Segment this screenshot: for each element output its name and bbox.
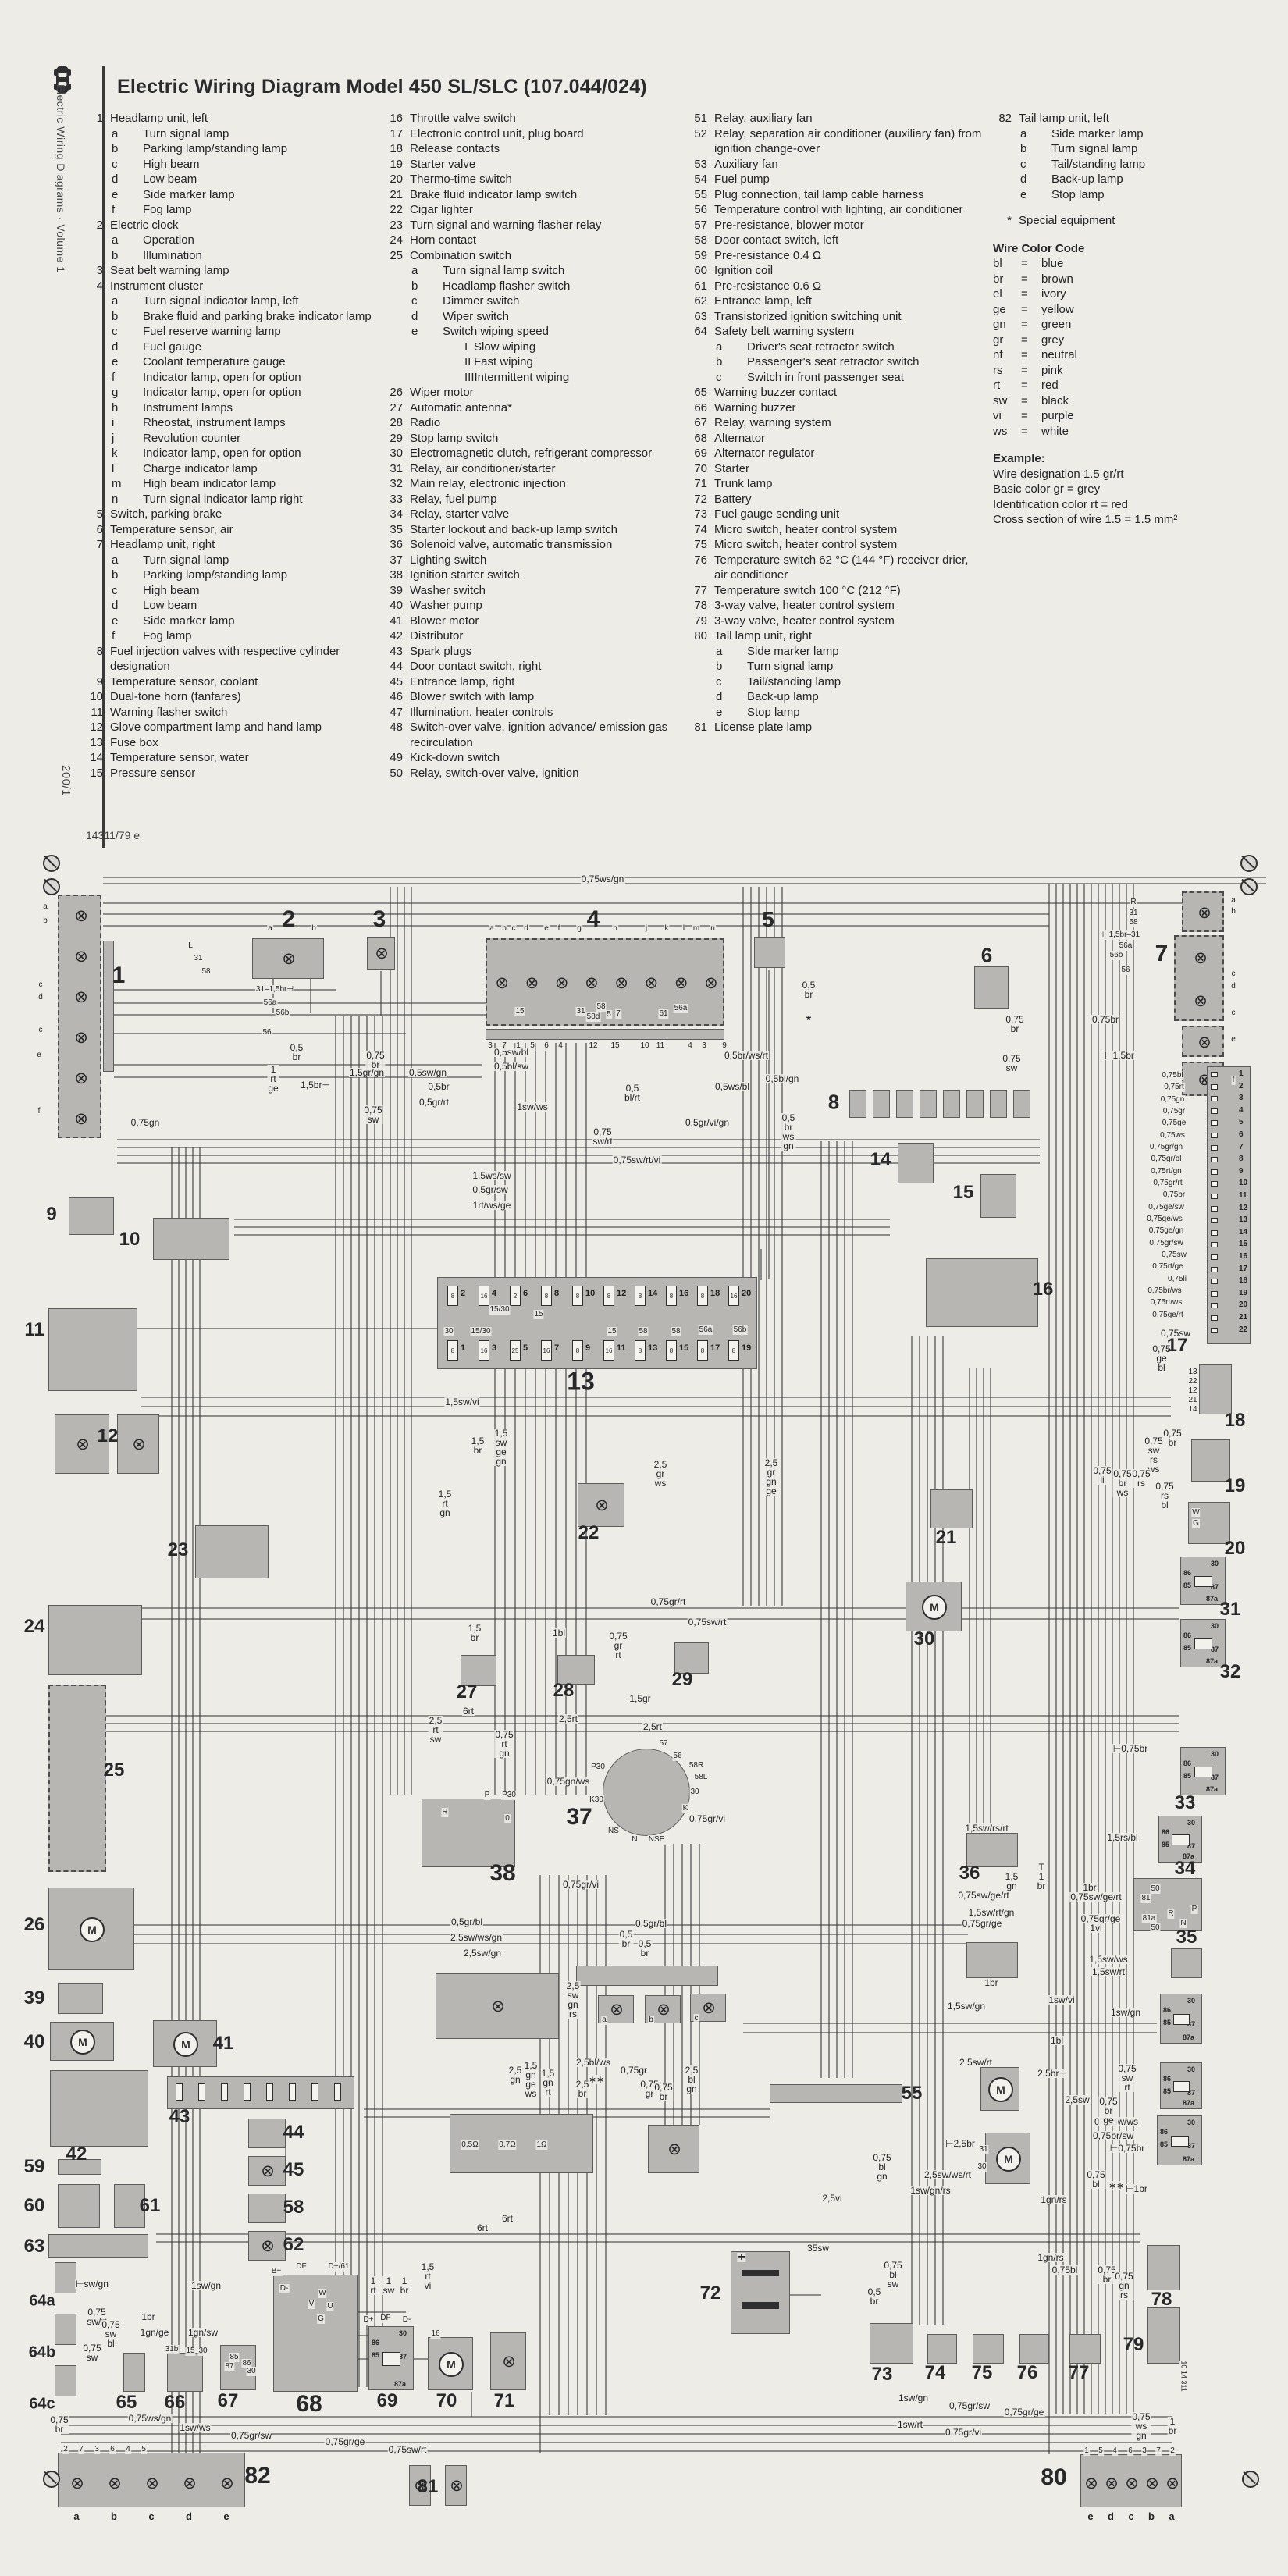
legend-text: Main relay, electronic injection (410, 476, 678, 492)
wire-label: 2,5rt (642, 1722, 663, 1731)
wire-label: n (710, 924, 716, 934)
fuse-number: 11 (617, 1343, 626, 1353)
legend-text: Switch wiping speed (443, 324, 678, 340)
wire-label: ∗∗ (588, 2075, 605, 2084)
component-25 (48, 1685, 106, 1872)
wire-label: 1bl (1050, 2036, 1064, 2045)
legend-row: 54Fuel pump (688, 172, 984, 187)
legend-row: 62Entrance lamp, left (688, 294, 984, 309)
component-11 (48, 1308, 137, 1391)
legend-row: 58Door contact switch, left (688, 233, 984, 248)
relay-terminal: 30 (399, 2329, 407, 2337)
legend-row: 80Tail lamp unit, right (688, 628, 984, 644)
wire-label: 0,75sw (82, 2343, 101, 2362)
wire-label: 0 (504, 1814, 511, 1823)
legend-key: e (110, 187, 143, 203)
fuse-number: 16 (679, 1289, 688, 1298)
component-14 (898, 1143, 934, 1183)
bulb-icon: ⊗ (145, 2476, 159, 2492)
wire-label: 0,75br (49, 2415, 69, 2434)
legend-text: Back-up lamp (747, 689, 984, 705)
legend-text: Charge indicator lamp (143, 461, 373, 477)
legend-text: Warning flasher switch (110, 705, 373, 720)
component-64a (55, 2262, 76, 2293)
legend-number: 17 (384, 126, 403, 142)
legend-number: 43 (384, 644, 403, 660)
fuse-number: 4 (492, 1289, 496, 1298)
legend-key: c (110, 157, 143, 173)
wire-label: 1,5rtvi (421, 2262, 436, 2290)
lamp-letter: d (1108, 2510, 1114, 2522)
legend-text: Turn signal lamp (143, 126, 373, 142)
wire-label: 1rt (369, 2276, 376, 2295)
legend-text: Dual-tone horn (fanfares) (110, 689, 373, 705)
legend-key: e (410, 324, 443, 340)
ecu-terminal (1211, 1279, 1218, 1284)
wire-label: 30 (246, 2367, 256, 2376)
wire-label: 15 (607, 1327, 617, 1336)
wire-label: 58 (671, 1327, 681, 1336)
wire-label: 58 (201, 967, 211, 977)
bulb-icon: ⊗ (1165, 2476, 1179, 2492)
ecu-terminal-number: 10 (1239, 1179, 1247, 1187)
wire-label: 56b (733, 1325, 748, 1335)
ecu-terminal-number: 22 (1239, 1325, 1247, 1334)
legend-text: Revolution counter (143, 431, 373, 447)
legend-key: c (410, 294, 443, 309)
legend-row: 32Main relay, electronic injection (384, 476, 678, 492)
motor-icon: M (922, 1595, 947, 1620)
wire-label: 0,75sw (1161, 1251, 1187, 1260)
lamp-letter: b (1148, 2510, 1155, 2522)
wire-label: L (187, 941, 194, 951)
component-26: M (48, 1888, 134, 1970)
component-number-64b: 64b (29, 2344, 55, 2362)
fuse: 8 (603, 1286, 614, 1306)
component-number-19: 19 (1225, 1475, 1246, 1497)
legend-text: Relay, warning system (714, 415, 984, 431)
wire-label: 2,5gn (508, 2065, 523, 2084)
legend-row: 70Starter (688, 461, 984, 477)
legend-row: dLow beam (84, 598, 373, 614)
wire-label: 31 (1128, 909, 1138, 918)
legend-row: kIndicator lamp, open for option (84, 446, 373, 461)
component-number-64c: 64c (29, 2396, 55, 2414)
legend-row: eSide marker lamp (84, 187, 373, 203)
wire-label: d (1230, 982, 1236, 991)
legend-number: 13 (84, 735, 103, 751)
wire-color-code-row: br=brown (993, 272, 1266, 287)
legend-row: 13Fuse box (84, 735, 373, 751)
ecu-terminal (1211, 1230, 1218, 1236)
legend-row: 69Alternator regulator (688, 446, 984, 461)
wire-label: 0,5ws/bl (714, 1082, 750, 1091)
component-number-30: 30 (914, 1628, 935, 1650)
component-76 (1019, 2334, 1049, 2364)
legend-text: Glove compartment lamp and hand lamp (110, 720, 373, 735)
legend-text: Washer pump (410, 598, 678, 614)
legend-number: 61 (688, 279, 707, 294)
wire-label: 0,75gr/vi (945, 2428, 982, 2437)
wire-label: NS (607, 1827, 620, 1836)
wire-label: 1br (984, 1978, 998, 1987)
legend-text: Micro switch, heater control system (714, 522, 984, 538)
component-number-63: 63 (24, 2236, 45, 2258)
relay-terminal: 87 (1211, 1583, 1219, 1591)
wire-label: 7 (78, 2445, 84, 2454)
legend-number: 1 (84, 111, 103, 126)
legend-row: iRheostat, instrument lamps (84, 415, 373, 431)
legend-key: b (110, 568, 143, 583)
legend-key: a (110, 553, 143, 568)
legend-text: Headlamp flasher switch (443, 279, 678, 294)
bulb-icon: ⊗ (1194, 994, 1208, 1009)
wire-label: 0,7Ω (498, 2140, 516, 2150)
bulb-icon: ⊗ (1084, 2476, 1098, 2492)
relay-terminal: 86 (1162, 1828, 1169, 1836)
legend-number: 70 (688, 461, 707, 477)
legend-text: Warning buzzer contact (714, 385, 984, 400)
legend-text: Transistorized ignition switching unit (714, 309, 984, 325)
wire-color-name: purple (1041, 408, 1074, 424)
legend-text: Temperature control with lighting, air c… (714, 202, 984, 218)
component-53: M (980, 2067, 1019, 2111)
legend-text: Back-up lamp (1051, 172, 1266, 187)
component-number-20: 20 (1225, 1538, 1246, 1560)
wire-label: 2 (1169, 2446, 1176, 2456)
wire-label: 2,5sw/gn (463, 1948, 502, 1958)
wire-label: 3 (94, 2445, 100, 2454)
wire-label: 0,75sw (363, 1105, 382, 1124)
fuse-number: 17 (710, 1343, 720, 1353)
ecu-terminal (1211, 1315, 1218, 1321)
component-9 (69, 1197, 114, 1235)
component-number-2: 2 (283, 906, 296, 933)
legend-number: 29 (384, 431, 403, 447)
wire-label: 0,75gn (1160, 1095, 1186, 1105)
legend-row: lCharge indicator lamp (84, 461, 373, 477)
legend-number: 79 (688, 614, 707, 629)
legend-text: Fuel gauge sending unit (714, 507, 984, 522)
bulb-icon: ⊗ (74, 990, 88, 1005)
fuse-number: 1 (461, 1343, 465, 1353)
legend-row: dWiper switch (384, 309, 678, 325)
wire-label: 31 (193, 954, 203, 963)
component-54: M (985, 2133, 1030, 2184)
wire-color-equals: = (1021, 424, 1041, 439)
relay-terminal: 85 (1160, 2140, 1168, 2148)
wire-label: 0,75blsw (883, 2261, 902, 2289)
component-number-40: 40 (24, 2031, 45, 2053)
wire-label: 0,75grrt (608, 1631, 628, 1660)
legend-number: 12 (84, 720, 103, 735)
wire-label: d (523, 924, 529, 934)
legend-key: e (110, 614, 143, 629)
legend-number: 19 (384, 157, 403, 173)
legend-text: Blower switch with lamp (410, 689, 678, 705)
legend-text: Side marker lamp (747, 644, 984, 660)
legend-row: 57Pre-resistance, blower motor (688, 218, 984, 233)
component-number-69: 69 (377, 2390, 398, 2412)
component-22: ⊗ (578, 1483, 624, 1527)
component-number-28: 28 (553, 1680, 575, 1702)
component-17: 12345678910111213141516171819202122 (1207, 1066, 1251, 1344)
relay-terminal: 86 (1163, 2075, 1171, 2083)
legend-text: Side marker lamp (1051, 126, 1266, 142)
legend-row: 51Relay, auxiliary fan (688, 111, 984, 126)
fuse: 16 (479, 1286, 489, 1306)
wire-label: ⊢1br (1125, 2184, 1148, 2194)
legend-text: Tail/standing lamp (747, 674, 984, 690)
wire-label: 0,5br (802, 980, 817, 999)
ecu-terminal-number: 15 (1239, 1240, 1247, 1248)
legend-row: dLow beam (84, 172, 373, 187)
legend-row: 35Starter lockout and back-up lamp switc… (384, 522, 678, 538)
legend-row: 52Relay, separation air conditioner (aux… (688, 126, 984, 157)
legend-text: Solenoid valve, automatic transmission (410, 537, 678, 553)
legend-number: 55 (688, 187, 707, 203)
wire-label: 6 (1127, 2446, 1133, 2456)
component-45: ⊗ (248, 2156, 286, 2186)
wire-label: 0,75br (1162, 1429, 1182, 1447)
wire-color-code-title: Wire Color Code (993, 241, 1266, 257)
legend-row: fIndicator lamp, open for option (84, 370, 373, 386)
relay-terminal: 30 (1187, 1997, 1195, 2005)
legend-row: 45Entrance lamp, right (384, 674, 678, 690)
legend-row: 16Throttle valve switch (384, 111, 678, 126)
legend-row: 46Blower switch with lamp (384, 689, 678, 705)
component-8c (896, 1090, 913, 1118)
component-number-9: 9 (46, 1204, 56, 1226)
wire-label: 56a (674, 1004, 688, 1013)
lamp-letter: c (1128, 2510, 1133, 2522)
legend-row: 20Thermo-time switch (384, 172, 678, 187)
legend-key: e (714, 705, 747, 720)
wire-label: 0,75blgn (872, 2153, 891, 2181)
legend-number: 52 (688, 126, 707, 142)
wire-label: 10 (639, 1041, 649, 1051)
component-number-41: 41 (213, 2033, 234, 2055)
bulb-icon: ⊗ (674, 976, 688, 991)
legend-row: 75Micro switch, heater control system (688, 537, 984, 553)
legend-row: 21Brake fluid indicator lamp switch (384, 187, 678, 203)
bulb-icon: ⊗ (74, 1030, 88, 1046)
wire-color-code-row: el=ivory (993, 286, 1266, 302)
wire-label: 1,5ws/sw (471, 1171, 511, 1180)
legend-number: 71 (688, 476, 707, 492)
wire-label: 0,75br/sw (1092, 2131, 1134, 2140)
ecu-terminal-number: 11 (1239, 1191, 1247, 1200)
wire-label: ⊢1,5br (1104, 1051, 1135, 1060)
wire-label: 0,75rt (1163, 1083, 1185, 1092)
legend-row: cHigh beam (84, 157, 373, 173)
wire-label: 56 (672, 1752, 682, 1761)
legend-text: Alternator regulator (714, 446, 984, 461)
legend-text: Trunk lamp (714, 476, 984, 492)
component-8h (1013, 1090, 1030, 1118)
wire-label: c (38, 980, 44, 990)
wire-label: 0,5br (619, 1930, 634, 1948)
legend-row: 783-way valve, heater control system (688, 598, 984, 614)
relay-terminal: 85 (1183, 1644, 1191, 1652)
component-number-36: 36 (959, 1863, 980, 1884)
relay-terminal: 85 (1183, 1772, 1191, 1780)
wire-label: h (612, 924, 618, 934)
component-8d (920, 1090, 937, 1118)
legend-text: Tail lamp unit, right (714, 628, 984, 644)
component-63 (48, 2234, 148, 2258)
legend-number: 31 (384, 461, 403, 477)
legend-key: b (410, 279, 443, 294)
motor-icon: M (173, 2032, 198, 2057)
wire-label: 0,75bl (1051, 2265, 1079, 2275)
legend-number: 66 (688, 400, 707, 416)
component-8a (849, 1090, 866, 1118)
wire-label: c (1231, 1009, 1236, 1018)
legend-number: 68 (688, 431, 707, 447)
legend-number: 16 (384, 111, 403, 126)
component-number-37: 37 (566, 1804, 592, 1831)
legend-row: 11Warning flasher switch (84, 705, 373, 720)
legend-key: k (110, 446, 143, 461)
wire-color-equals: = (1021, 317, 1041, 333)
wire-color-code-row: sw=black (993, 393, 1266, 409)
legend-column-4: 82Tail lamp unit, leftaSide marker lampb… (993, 111, 1266, 528)
bulb-icon: ⊗ (1194, 951, 1208, 966)
legend-number: 28 (384, 415, 403, 431)
wire-color-name: ivory (1041, 286, 1066, 302)
wire-color-equals: = (1021, 272, 1041, 287)
legend-row: 31Relay, air conditioner/starter (384, 461, 678, 477)
legend-row: jRevolution counter (84, 431, 373, 447)
legend-row: mHigh beam indicator lamp (84, 476, 373, 492)
wire-label: 0,75gr/vi (688, 1814, 726, 1823)
component-66 (167, 2353, 203, 2392)
wire-label: DF (295, 2262, 307, 2272)
wire-label: 0,5bl/gn (765, 1074, 800, 1083)
legend-number: 24 (384, 233, 403, 248)
component-number-29: 29 (672, 1669, 693, 1691)
legend-row: 17Electronic control unit, plug board (384, 126, 678, 142)
wire-label: K (682, 1804, 689, 1813)
legend-text: Thermo-time switch (410, 172, 678, 187)
wire-label: 9 (721, 1041, 728, 1051)
legend-text: Headlamp unit, left (110, 111, 373, 126)
wire-label: 0,75gr (1162, 1107, 1186, 1116)
component-8e (943, 1090, 960, 1118)
wire-label: 5 (529, 1041, 535, 1051)
legend-number: 49 (384, 750, 403, 766)
ecu-terminal-number: 4 (1239, 1106, 1244, 1115)
legend-row: 1Headlamp unit, left (84, 111, 373, 126)
legend-row: 59Pre-resistance 0.4 Ω (688, 248, 984, 264)
wire-label: 0,75brws (1112, 1469, 1132, 1497)
component-number-73: 73 (872, 2364, 893, 2386)
wire-label: 0,75gr/ge (325, 2437, 366, 2446)
legend-text: Lighting switch (410, 553, 678, 568)
legend-text: Battery (714, 492, 984, 507)
ecu-terminal-number: 9 (1239, 1167, 1244, 1176)
ecu-terminal-number: 5 (1239, 1118, 1244, 1126)
wire-label: 7 (501, 1041, 507, 1051)
legend-number: 6 (84, 522, 103, 538)
relay-terminal: 86 (372, 2339, 379, 2347)
wire-label: 7 (1155, 2446, 1162, 2456)
legend-number: 62 (688, 294, 707, 309)
bulb-icon: ⊗ (1197, 1035, 1212, 1051)
legend-key: b (110, 141, 143, 157)
component-3: ⊗ (367, 937, 395, 970)
wire-color-equals: = (1021, 286, 1041, 302)
relay-terminal: 30 (1211, 1622, 1219, 1630)
relay-terminal: 30 (1211, 1750, 1219, 1758)
legend-row: 34Relay, starter valve (384, 507, 678, 522)
component-number-58: 58 (283, 2197, 304, 2218)
component-7a: ⊗ (1182, 891, 1224, 932)
legend-row: 74Micro switch, heater control system (688, 522, 984, 538)
relay-terminal: 87a (1183, 2099, 1194, 2107)
legend-row: 24Horn contact (384, 233, 678, 248)
fuse: 8 (541, 1286, 552, 1306)
spark-plug (334, 2083, 341, 2101)
legend-number: 4 (84, 279, 103, 294)
ecu-terminal (1211, 1242, 1218, 1247)
legend-row: cTail/standing lamp (688, 674, 984, 690)
wire-label: 2,5rtsw (429, 1716, 443, 1744)
legend-number: 72 (688, 492, 707, 507)
bulb-icon: ⊗ (1125, 2476, 1139, 2492)
wire-label: a (601, 2016, 607, 2025)
wire-label: D- (402, 2315, 412, 2325)
wire-label: 10 14 311 (1179, 2361, 1188, 2391)
spark-plug (221, 2083, 228, 2101)
wire-label: f (557, 924, 561, 934)
wire-label: 0,75sw/rt/vi (613, 1155, 662, 1165)
wire-label: 1vi (1089, 1923, 1102, 1933)
legend-row: 14Temperature sensor, water (84, 750, 373, 766)
wire-label: 31 (575, 1007, 585, 1016)
legend-number: 39 (384, 583, 403, 599)
relay-terminal: 87 (399, 2353, 407, 2361)
legend-text: Switch, parking brake (110, 507, 373, 522)
wire-color-name: brown (1041, 272, 1073, 287)
legend-text: Radio (410, 415, 678, 431)
wire-label: 56 (262, 1028, 272, 1037)
bulb-icon: ⊗ (595, 1498, 609, 1514)
bulb-icon: ⊗ (495, 976, 509, 991)
component-30: M (906, 1582, 962, 1631)
wire-label: 1,5swgegn (494, 1429, 509, 1466)
component-number-18: 18 (1225, 1410, 1246, 1432)
legend-text: 3-way valve, heater control system (714, 614, 984, 629)
legend-text: Illumination (143, 248, 373, 264)
wire-label: 1,5sw/rt/gn (968, 1908, 1016, 1917)
wiring-diagram: ⊗⊗⊗⊗⊗⊗⊗⊗⊗⊗⊗⊗⊗⊗⊗⊗⊗⊗⊗⊗⊗⊗⊗82811641632625588… (0, 855, 1288, 2576)
motor-icon: M (996, 2147, 1021, 2172)
wire-label: 1,5sw/gn (947, 2001, 986, 2011)
legend-row: 40Washer pump (384, 598, 678, 614)
wire-label: g (576, 924, 582, 934)
legend-number: 30 (384, 446, 403, 461)
wire-label: W (318, 2289, 326, 2298)
legend-key: n (110, 492, 143, 507)
wire-color-code: sw (993, 393, 1021, 409)
wire-label: 0,75ge (1162, 1119, 1187, 1128)
legend-row: *Special equipment (993, 213, 1266, 229)
legend-number: 27 (384, 400, 403, 416)
legend-number: 45 (384, 674, 403, 690)
component-number-71: 71 (494, 2390, 515, 2412)
